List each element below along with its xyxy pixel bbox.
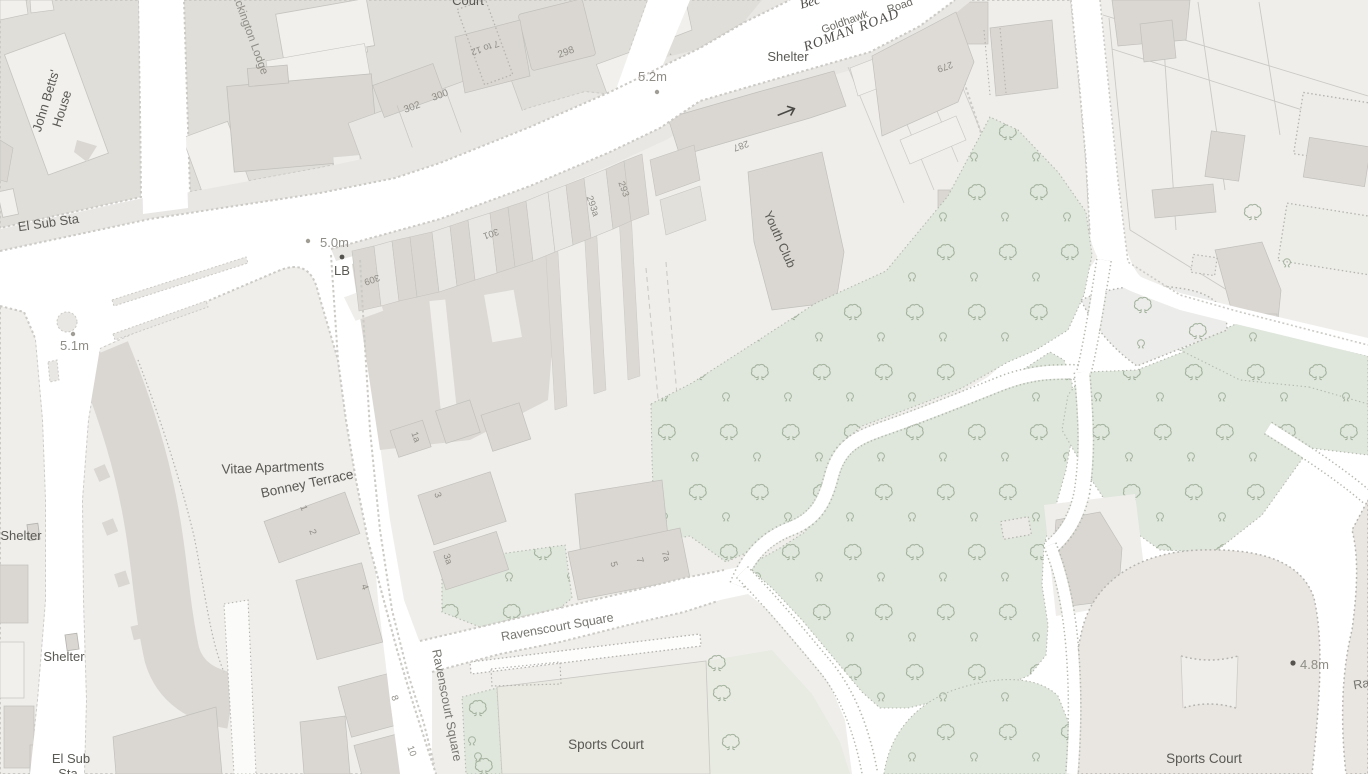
svg-text:5.0m: 5.0m [320,235,349,250]
svg-text:4.8m: 4.8m [1300,657,1329,672]
svg-text:5.2m: 5.2m [638,69,667,84]
svg-text:Ra: Ra [1352,676,1368,693]
svg-text:Shelter: Shelter [43,649,85,664]
svg-text:El Sub: El Sub [52,751,90,766]
svg-text:Sta: Sta [58,766,78,774]
svg-text:Shelter: Shelter [0,528,42,543]
svg-text:Shelter: Shelter [767,49,809,64]
svg-text:Court: Court [452,0,484,8]
svg-text:Sports Court: Sports Court [1166,751,1242,766]
svg-text:Sports Court: Sports Court [568,737,644,752]
svg-text:LB: LB [334,263,350,278]
svg-text:5.1m: 5.1m [60,338,89,353]
